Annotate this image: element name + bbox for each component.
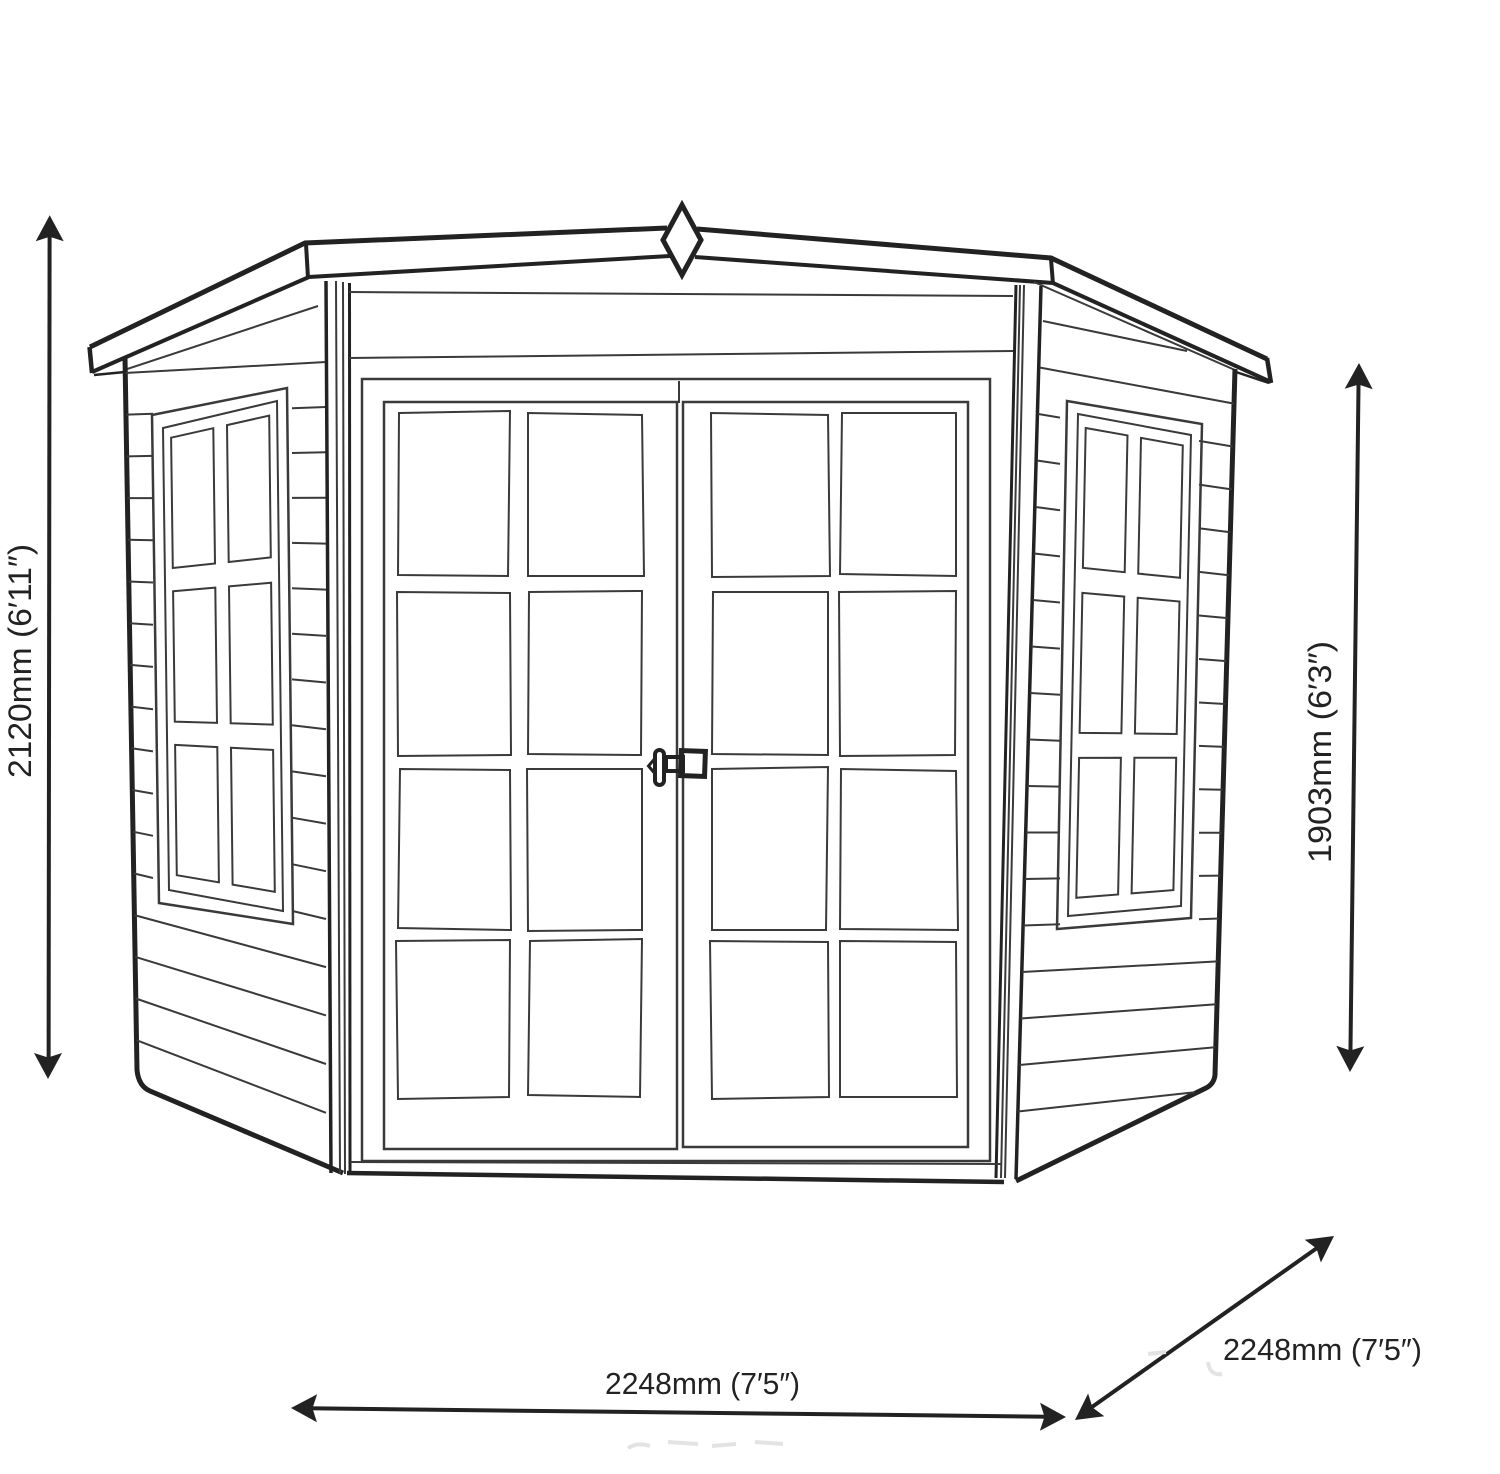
svg-text:1903mm (6′3″): 1903mm (6′3″) [1302, 641, 1338, 863]
svg-text:2248mm (7′5″): 2248mm (7′5″) [1223, 1332, 1422, 1367]
svg-text:2120mm (6′11″): 2120mm (6′11″) [2, 544, 38, 778]
svg-text:2248mm (7′5″): 2248mm (7′5″) [605, 1366, 800, 1401]
